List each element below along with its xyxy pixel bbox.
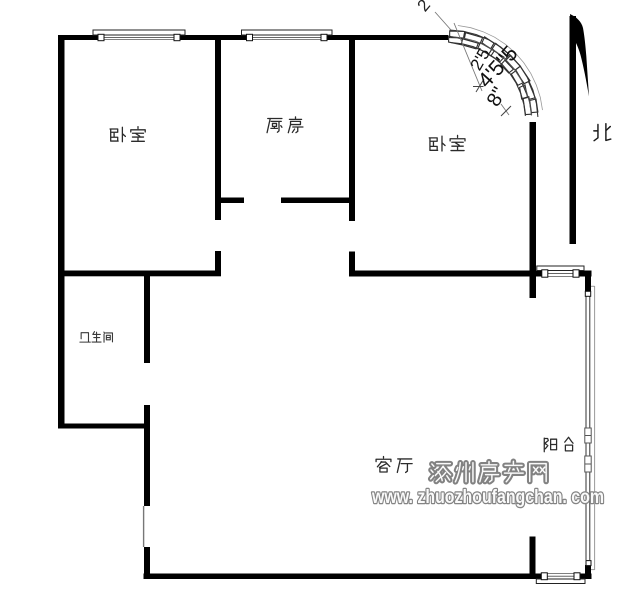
svg-text:www. zhuozhoufangchan. com: www. zhuozhoufangchan. com xyxy=(371,487,604,508)
